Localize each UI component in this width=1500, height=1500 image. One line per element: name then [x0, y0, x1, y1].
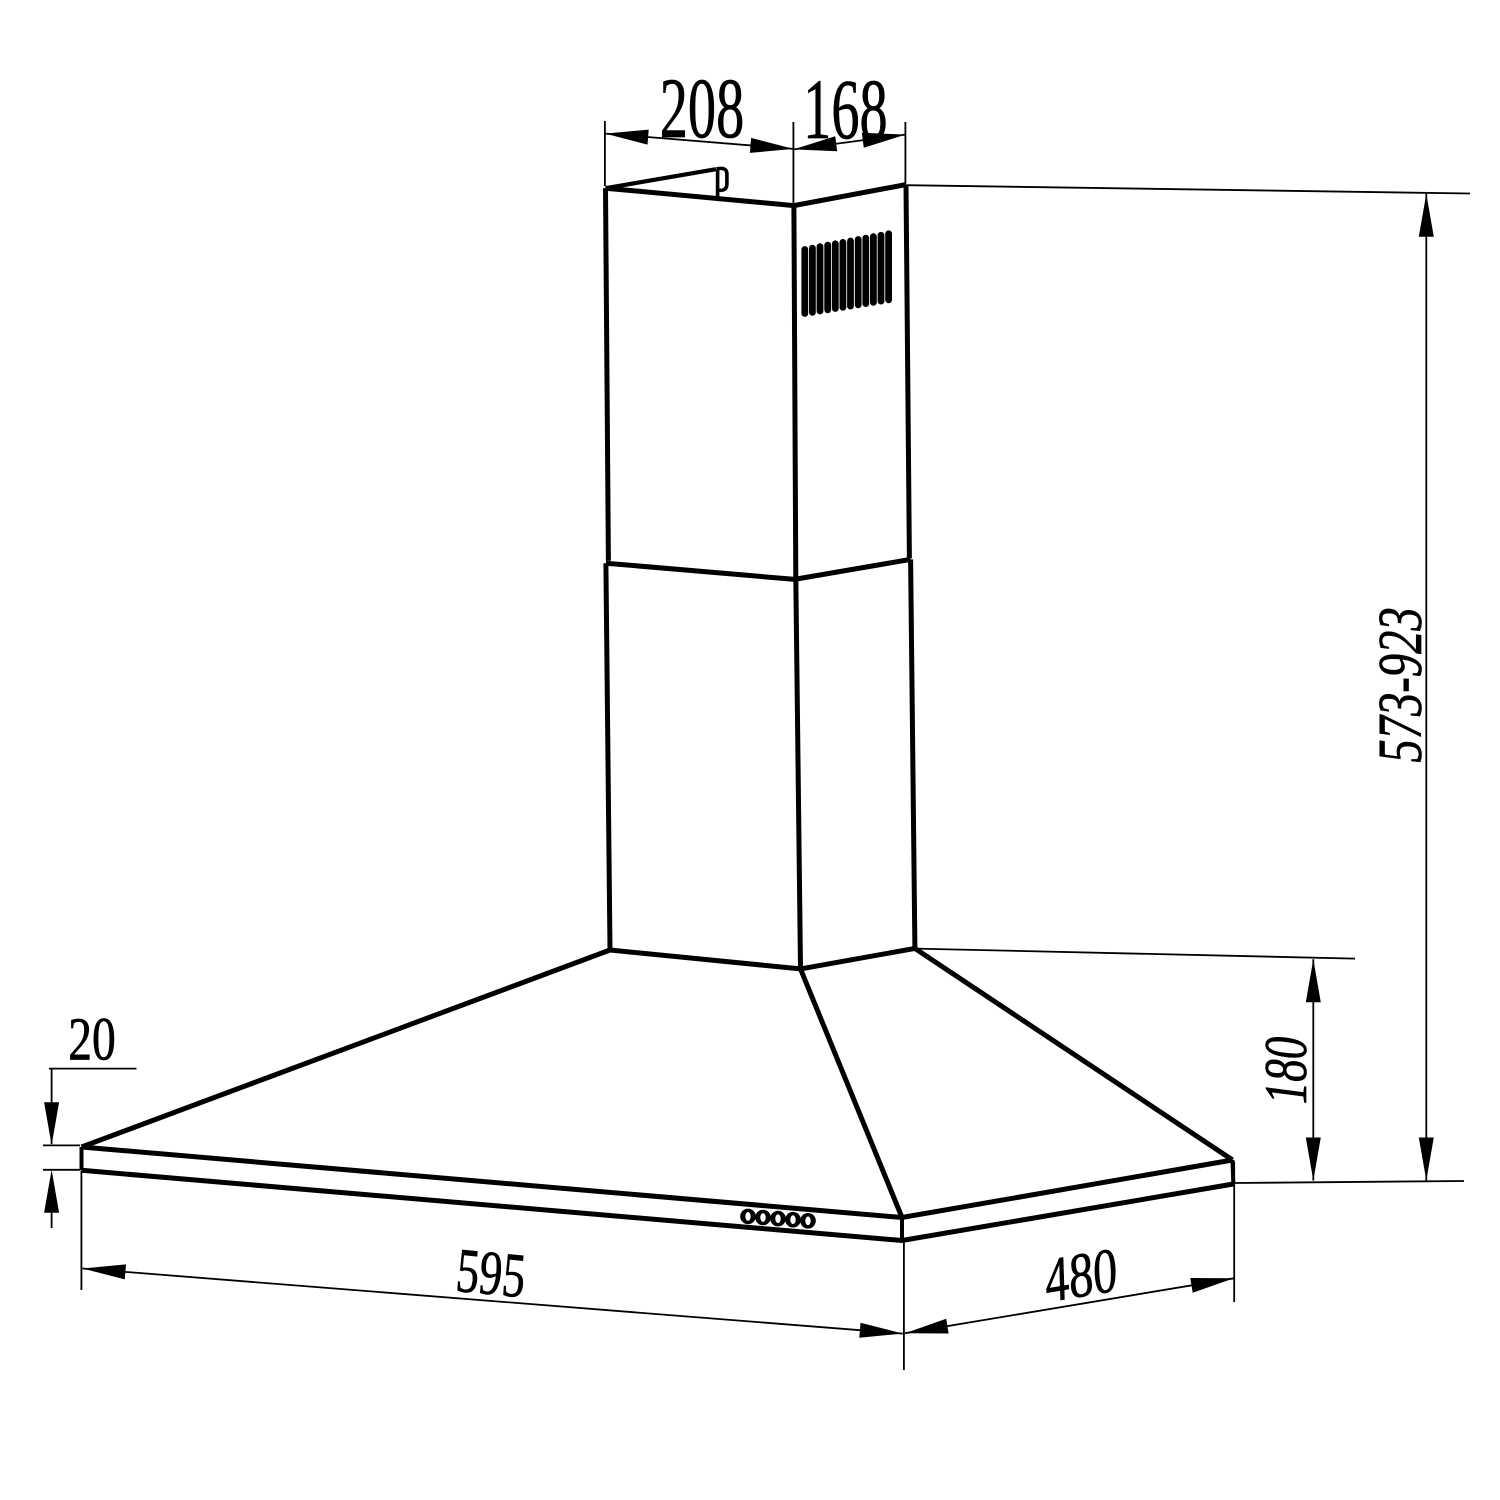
svg-text:168: 168: [803, 61, 887, 157]
svg-text:573-923: 573-923: [1365, 607, 1434, 762]
svg-text:180: 180: [1254, 1037, 1320, 1104]
svg-text:208: 208: [660, 60, 744, 156]
svg-text:480: 480: [1039, 1236, 1122, 1317]
svg-text:595: 595: [453, 1235, 528, 1311]
svg-text:20: 20: [68, 1005, 116, 1073]
